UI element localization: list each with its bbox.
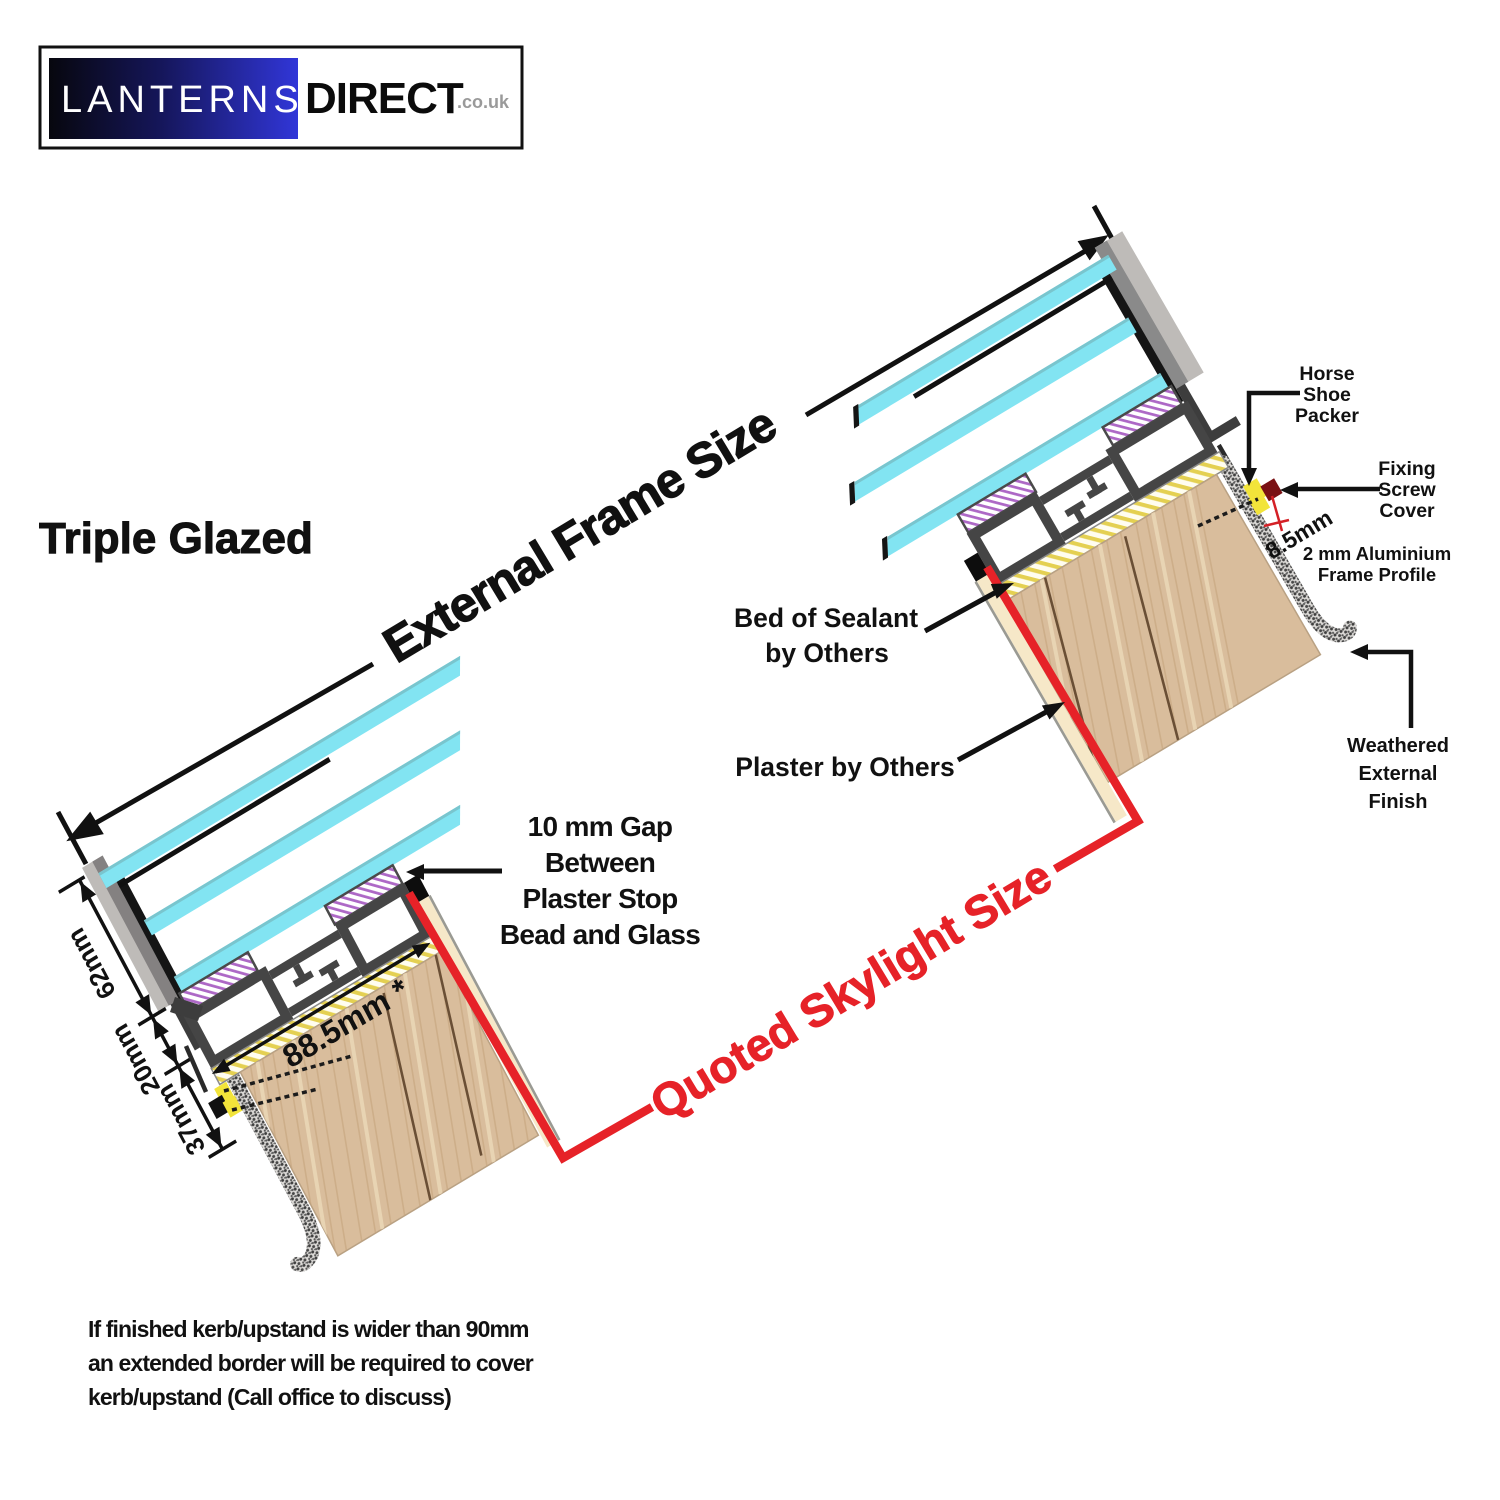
svg-text:Screw: Screw [1378, 479, 1436, 501]
svg-text:Cover: Cover [1379, 500, 1435, 522]
svg-text:Fixing: Fixing [1378, 458, 1435, 480]
svg-text:Plaster Stop: Plaster Stop [523, 883, 678, 914]
svg-text:Frame Profile: Frame Profile [1318, 564, 1436, 585]
svg-text:Triple Glazed: Triple Glazed [39, 514, 313, 563]
svg-text:.co.uk: .co.uk [457, 92, 510, 112]
svg-text:Between: Between [545, 847, 655, 878]
svg-text:10 mm Gap: 10 mm Gap [528, 811, 673, 842]
svg-text:External: External [1359, 763, 1438, 785]
svg-text:an extended border will be req: an extended border will be required to c… [88, 1350, 534, 1376]
svg-text:Weathered: Weathered [1347, 735, 1449, 757]
svg-text:kerb/upstand (Call office to d: kerb/upstand (Call office to discuss) [88, 1384, 451, 1410]
svg-text:Packer: Packer [1295, 405, 1359, 427]
svg-text:Shoe: Shoe [1303, 384, 1351, 406]
svg-text:LANTERNS: LANTERNS [61, 79, 304, 121]
svg-text:2 mm Aluminium: 2 mm Aluminium [1303, 543, 1451, 564]
svg-text:Bed of Sealant: Bed of Sealant [734, 603, 918, 633]
svg-text:DIRECT: DIRECT [305, 74, 464, 123]
svg-text:Finish: Finish [1369, 791, 1428, 813]
svg-text:Bead and Glass: Bead and Glass [500, 919, 700, 950]
svg-text:Plaster by Others: Plaster by Others [735, 752, 954, 782]
svg-text:If finished kerb/upstand is wi: If finished kerb/upstand is wider than 9… [88, 1316, 529, 1342]
svg-text:Horse: Horse [1299, 363, 1354, 385]
svg-text:by Others: by Others [765, 638, 889, 668]
